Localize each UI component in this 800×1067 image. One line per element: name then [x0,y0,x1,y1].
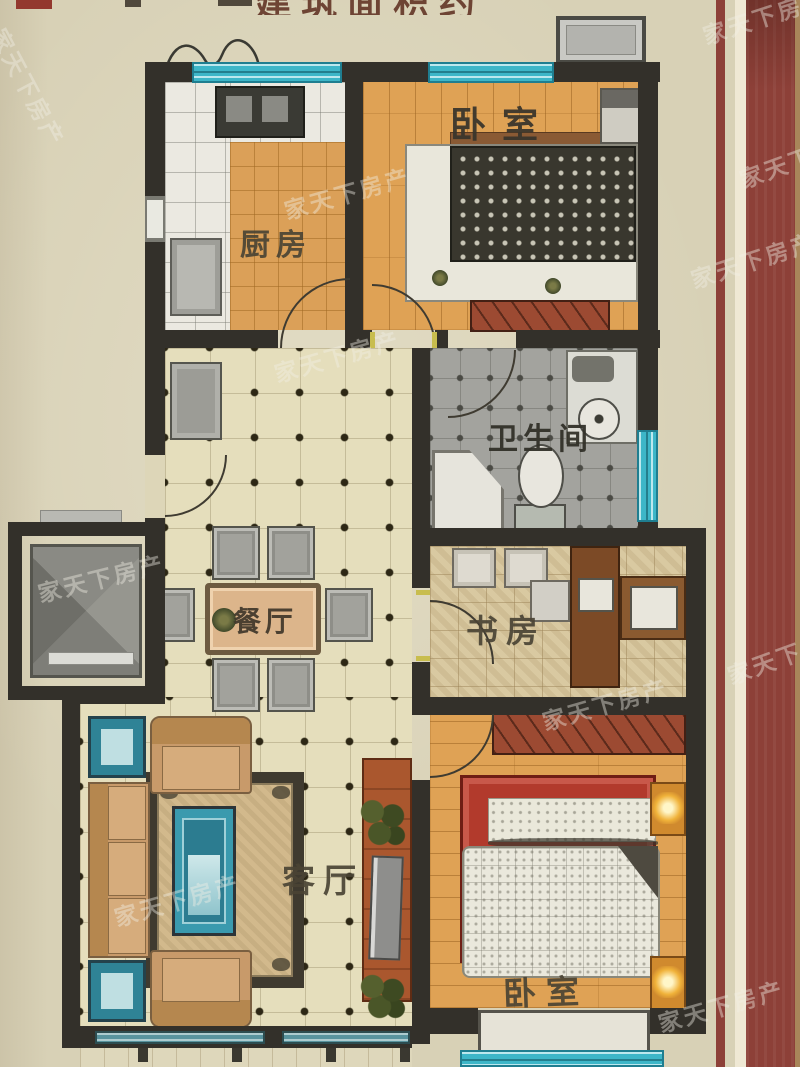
door-jamb-tick [432,332,437,348]
elevator-wall [8,522,22,700]
stove-burner [226,96,252,122]
bathroom-mirror [572,356,614,382]
balcony-post [400,1048,410,1062]
wall-kitchen-bottom [145,330,278,348]
end-table [88,716,146,778]
armchair-back [152,1000,250,1026]
dining-chair [212,526,260,580]
elevator-door-slot [48,652,134,665]
entry-closet [170,362,222,440]
door-jamb-tick [416,656,430,661]
kitchen-side-window [145,196,165,242]
tv [368,855,404,960]
end-table-top [99,727,135,767]
living-window [282,1031,410,1044]
dining-chair [212,658,260,712]
page-border-thin-stripe [716,0,725,1067]
wall-hall-divider [412,348,430,588]
end-table-top [99,971,135,1011]
bathroom-label: 卫生间 [488,414,593,458]
stove-burner [262,96,288,122]
balcony-post [138,1048,148,1062]
armchair-back [152,718,250,744]
study-desk [570,546,620,688]
bay-window [460,1050,664,1067]
bedroom-bottom-label: 卧室 [502,965,590,1016]
balcony-floor [80,1048,412,1067]
watermark: 家天下房产 [0,22,75,153]
dresser-top [602,90,638,108]
cropped-text-fragment [218,0,252,6]
plant-icon [358,796,406,848]
armchair [150,950,252,1028]
armchair-seat [162,958,240,1002]
kitchen-label: 厨房 [240,220,312,264]
monitor [630,586,678,630]
flower-decor-icon [432,270,448,286]
ac-unit-box [556,16,646,64]
armchair [150,716,252,794]
bedroom-top-window [428,62,554,83]
living-label: 客厅 [282,854,364,902]
dining-chair [267,658,315,712]
balcony-post [232,1048,242,1062]
elevator-wall [8,522,158,536]
cropped-headline: 建筑面积约 [255,0,585,15]
rug-motif [272,786,290,799]
dresser [600,88,640,144]
bed-pillows [488,798,656,842]
cropped-text-fragment [125,0,141,7]
plant-icon [358,972,406,1020]
cropped-text-fragment [16,0,52,9]
kitchen-window [192,62,342,83]
wall-left-living [62,686,80,1044]
wall-bath-bottom [412,528,706,546]
flower-decor-icon [545,278,561,294]
wall-right-lower [686,546,706,1033]
sofa-cushion [108,786,146,840]
wall-bedroom2-bottom [430,1008,478,1034]
lamp-glow [652,966,684,998]
sofa-backrest [90,784,108,956]
bedroom-top-label: 卧室 [450,96,554,148]
floor-plan-photo: 建筑面积约 [0,0,800,1067]
cropped-headline-text: 建筑面积约 [255,0,485,15]
bed-quilt-white [462,846,660,978]
study-chair [452,548,496,588]
rug-motif [272,958,290,971]
entry-threshold [145,455,165,518]
living-window [95,1031,265,1044]
ac-unit-inner [566,25,636,55]
wall-living-bedroom [412,780,430,1044]
armchair-seat [162,746,240,790]
door-jamb-tick [416,590,430,595]
wall-left [145,62,165,455]
bedroom-bench [470,300,610,332]
monitor [578,578,614,612]
washer-appliance [170,238,222,316]
dining-chair [325,588,373,642]
bathroom-window [637,430,658,522]
bay-window-sill [478,1010,650,1054]
dining-chair [267,526,315,580]
bed-quilt [450,146,636,262]
dining-label: 餐厅 [233,600,297,640]
sofa-cushion [108,842,146,896]
study-label: 书房 [466,606,546,652]
end-table [88,960,146,1022]
balcony-post [326,1048,336,1062]
lamp-glow [652,792,684,824]
